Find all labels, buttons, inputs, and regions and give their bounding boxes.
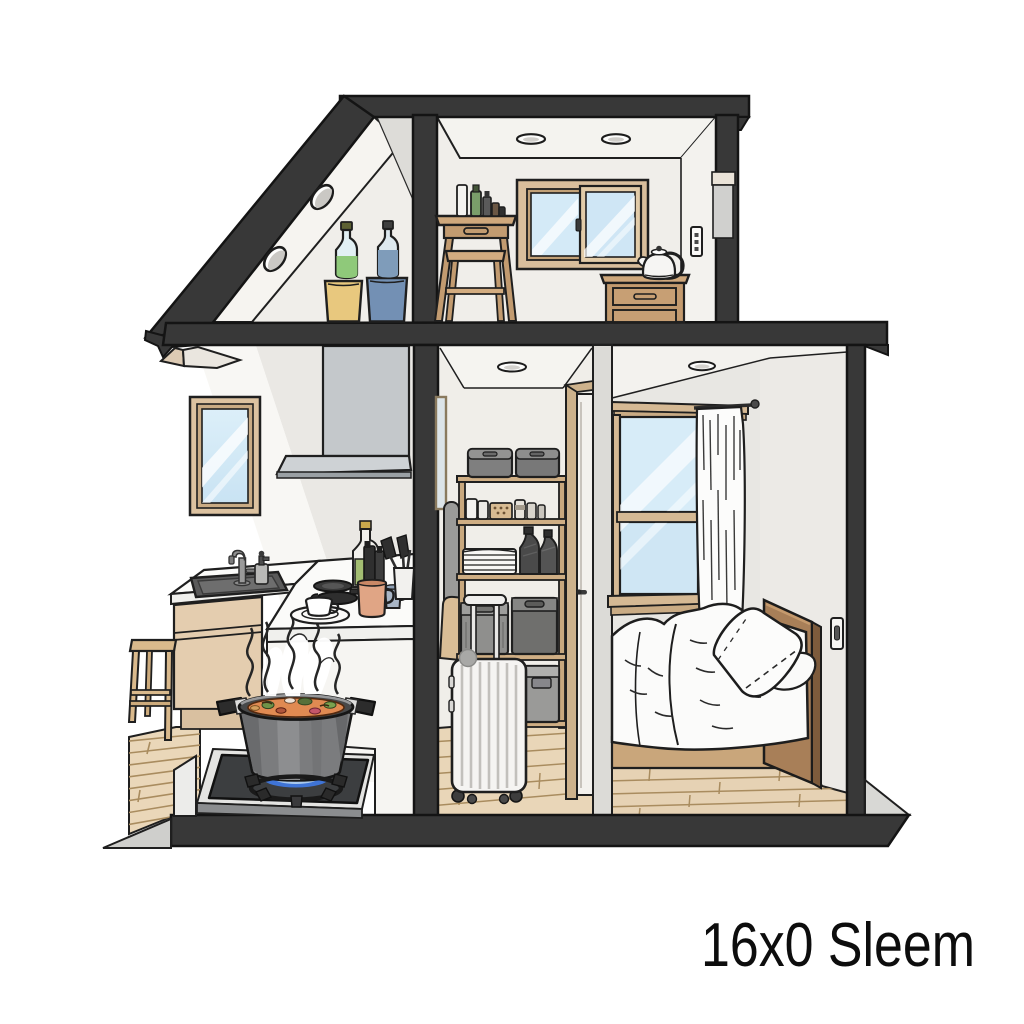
- svg-text:16x0 Sleem: 16x0 Sleem: [701, 911, 975, 980]
